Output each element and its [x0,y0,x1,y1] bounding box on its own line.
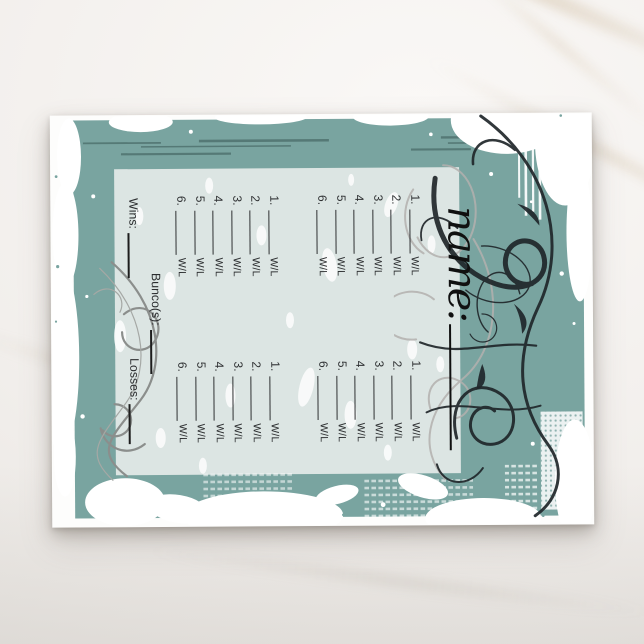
score-blank-line [195,377,208,421]
name-field: name: [441,206,482,450]
score-row: 3.W/L [230,195,245,287]
losses-field: Losses: [127,358,143,444]
win-loss-label: W/L [232,423,244,442]
win-loss-label: W/L [373,423,385,442]
score-row: 4.W/L [212,362,227,454]
row-number: 4. [353,361,366,376]
row-number: 4. [211,196,224,211]
score-row: 3.W/L [371,195,386,287]
row-number: 3. [371,195,384,210]
win-loss-label: W/L [392,423,404,442]
win-loss-label: W/L [316,257,328,276]
win-loss-label: W/L [269,423,281,442]
score-blank-line [335,210,348,254]
score-row: 6.W/L [316,361,331,453]
row-number: 6. [175,362,188,377]
score-row: 6.W/L [175,362,190,454]
losses-blank-line [129,404,143,444]
score-row: 2.W/L [391,360,406,452]
score-row: 1.W/L [408,194,423,286]
row-number: 5. [335,361,348,376]
row-number: 1. [268,361,281,376]
score-row: 6.W/L [174,196,189,288]
bunco-field: Bunco(s): [149,273,165,374]
score-blank-line [391,209,404,253]
score-blank-line [409,209,422,253]
score-blank-line [269,376,282,420]
score-row: 4.W/L [211,196,226,288]
score-row: 2.W/L [249,195,264,287]
wins-blank-line [127,233,141,278]
row-number: 5. [194,362,207,377]
win-loss-label: W/L [176,424,188,443]
row-number: 1. [267,195,280,210]
grunge-texture [51,113,593,526]
win-loss-label: W/L [354,423,366,442]
score-blank-line [410,375,423,419]
score-blank-line [355,376,368,420]
score-row: 4.W/L [352,195,367,287]
game-list-block-2: 1.W/L2.W/L3.W/L4.W/L5.W/L6.W/L [312,360,424,453]
marble-background: name: 1.W/L2.W/L3.W/L4.W/L5.W/L6.W/L 1.W… [0,0,644,644]
score-row: 5.W/L [194,362,209,454]
score-blank-line [268,210,281,254]
win-loss-label: W/L [372,257,384,276]
score-blank-line [250,210,263,254]
win-loss-label: W/L [410,422,422,441]
wins-label: Wins: [126,198,140,229]
score-blank-line [336,376,349,420]
score-blank-line [372,210,385,254]
row-number: 3. [372,361,385,376]
score-row: 5.W/L [193,196,208,288]
row-number: 5. [193,196,206,211]
win-loss-label: W/L [213,424,225,443]
win-loss-label: W/L [175,258,187,277]
row-number: 3. [231,361,244,376]
win-loss-label: W/L [195,424,207,443]
bunco-label: Bunco(s): [149,273,163,326]
win-loss-label: W/L [268,257,280,276]
score-row: 3.W/L [231,361,246,453]
score-row: 4.W/L [353,361,368,453]
score-row: 1.W/L [267,195,282,287]
score-row: 2.W/L [390,194,405,286]
game-list-block-4: 1.W/L2.W/L3.W/L4.W/L5.W/L6.W/L [171,361,283,454]
score-blank-line [231,210,244,254]
score-blank-line [392,375,405,419]
row-number: 5. [334,195,347,210]
score-blank-line [317,376,330,420]
row-number: 6. [315,195,328,210]
name-blank-line [449,324,452,450]
row-number: 1. [409,360,422,375]
score-blank-line [316,210,329,254]
win-loss-label: W/L [317,423,329,442]
losses-label: Losses: [127,358,141,400]
win-loss-label: W/L [353,257,365,276]
marble-vein [141,543,644,619]
row-number: 4. [212,362,225,377]
score-blank-line [213,211,226,255]
scorecard-design: name: 1.W/L2.W/L3.W/L4.W/L5.W/L6.W/L 1.W… [51,113,593,526]
row-number: 2. [391,361,404,376]
score-row: 5.W/L [334,195,349,287]
score-blank-line [214,377,227,421]
win-loss-label: W/L [251,423,263,442]
score-blank-line [176,377,189,421]
row-number: 3. [230,195,243,210]
score-row: 5.W/L [335,361,350,453]
win-loss-label: W/L [409,256,421,275]
score-blank-line [251,376,264,420]
score-row: 6.W/L [315,195,330,287]
win-loss-label: W/L [212,258,224,277]
score-blank-line [373,376,386,420]
row-number: 2. [249,195,262,210]
name-label: name: [441,206,482,321]
score-blank-line [354,210,367,254]
score-row: 3.W/L [372,361,387,453]
score-blank-line [175,211,188,255]
row-number: 4. [352,195,365,210]
win-loss-label: W/L [336,423,348,442]
row-number: 2. [250,361,263,376]
win-loss-label: W/L [335,257,347,276]
row-number: 2. [390,195,403,210]
win-loss-label: W/L [250,257,262,276]
postcard: name: 1.W/L2.W/L3.W/L4.W/L5.W/L6.W/L 1.W… [50,112,595,527]
score-row: 1.W/L [268,361,283,453]
marble-vein [317,0,644,99]
win-loss-label: W/L [391,257,403,276]
row-number: 6. [316,361,329,376]
row-number: 1. [408,194,421,209]
win-loss-label: W/L [194,258,206,277]
bunco-blank-line [150,330,164,374]
game-list-block-1: 1.W/L2.W/L3.W/L4.W/L5.W/L6.W/L [311,194,423,287]
score-blank-line [194,211,207,255]
game-list-block-3: 1.W/L2.W/L3.W/L4.W/L5.W/L6.W/L [170,195,282,288]
row-number: 6. [174,196,187,211]
score-row: 1.W/L [409,360,424,452]
win-loss-label: W/L [231,257,243,276]
score-blank-line [232,376,245,420]
wins-field: Wins: [126,198,141,278]
score-row: 2.W/L [250,361,265,453]
